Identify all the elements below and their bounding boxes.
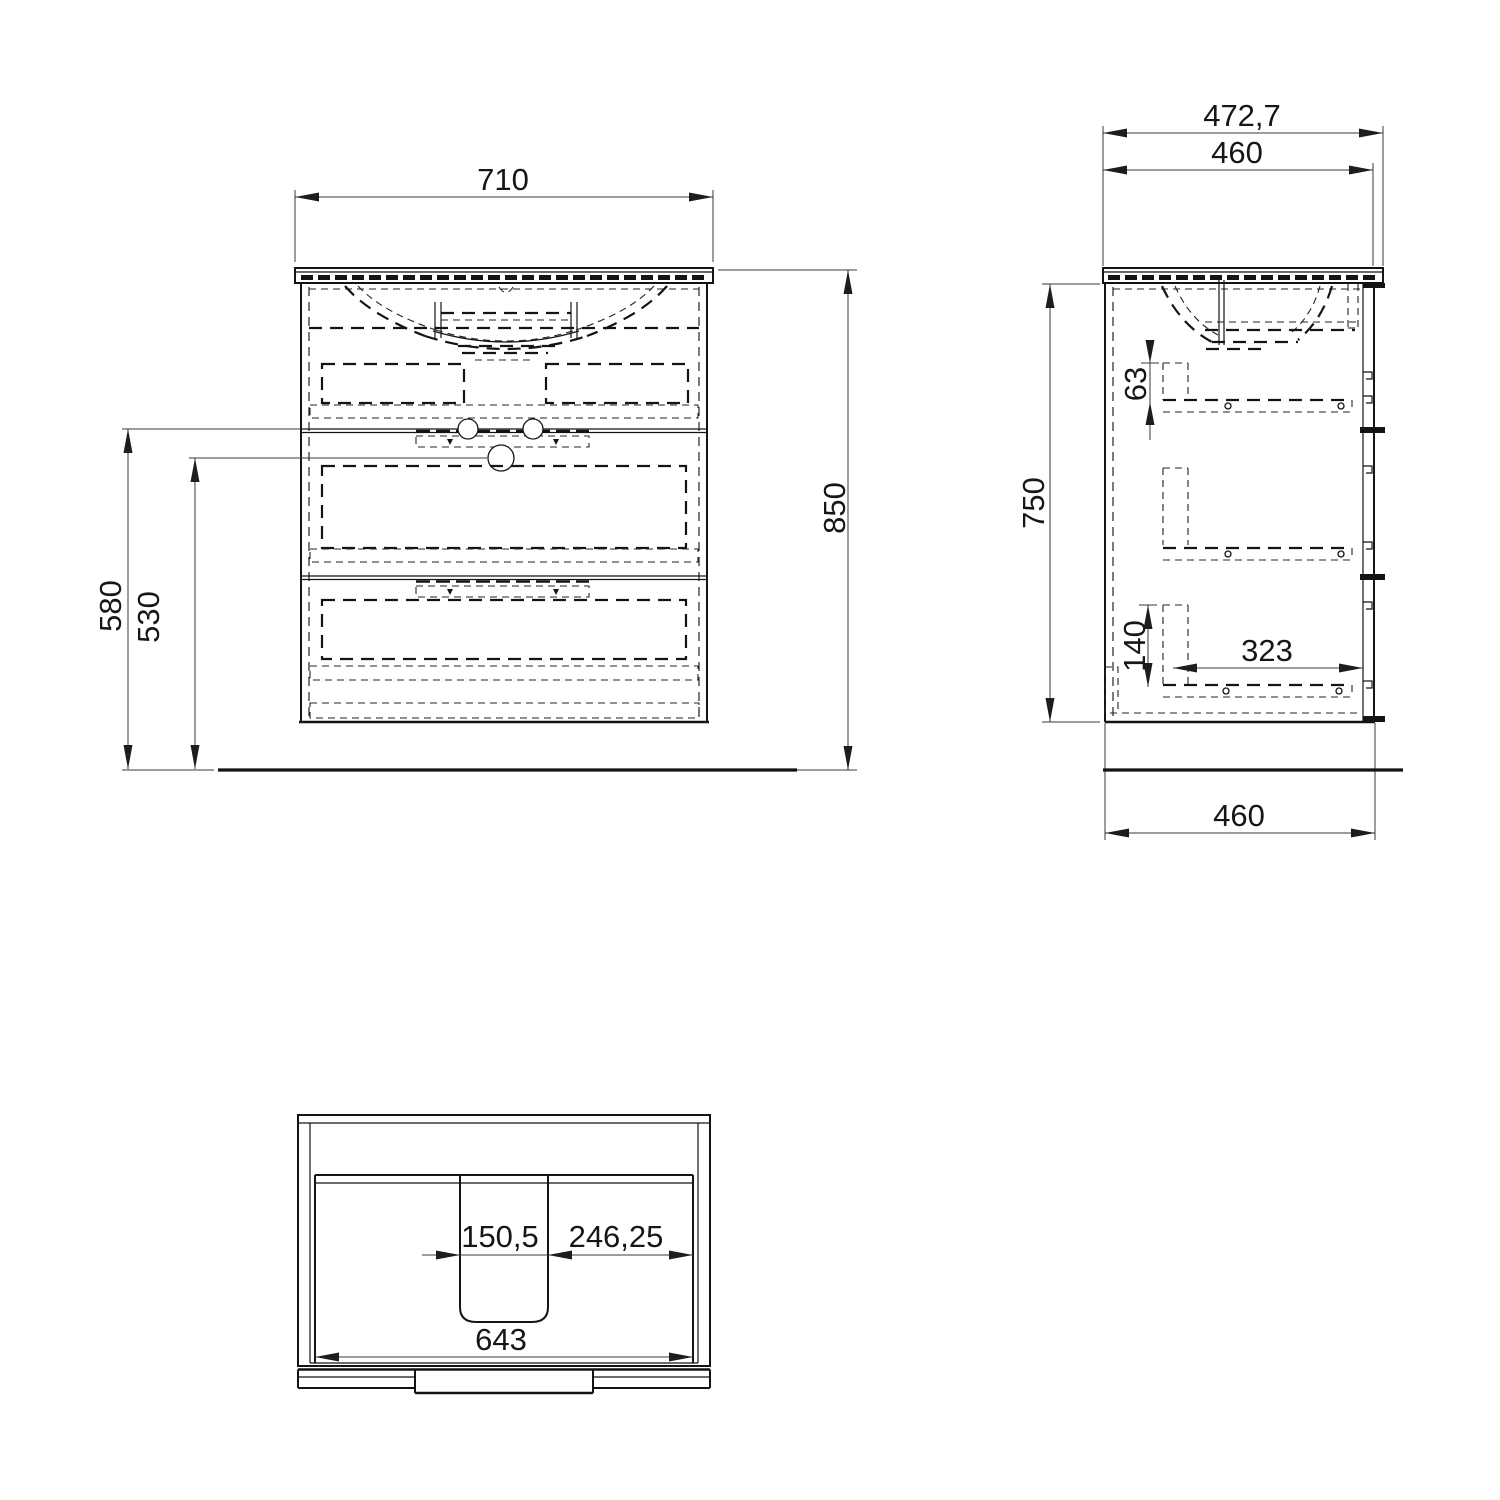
dim-side-depth-drawer-label: 323 — [1241, 633, 1293, 668]
dim-side-clearance-bottom-drawer-label: 140 — [1117, 620, 1152, 672]
technical-drawing-page: 710 850 580 530 — [0, 0, 1500, 1500]
dim-front-height-to-divider-label: 580 — [93, 580, 128, 632]
side-top-drawer-profile — [1163, 363, 1352, 412]
dim-side-clearance-bottom-drawer: 140 — [1117, 605, 1157, 687]
dim-side-clearance-top-drawer: 63 — [1118, 340, 1159, 440]
dim-plan-width-inner-label: 643 — [475, 1322, 527, 1357]
dim-side-height-cabinet: 750 — [1016, 284, 1100, 722]
dim-front-height-overall: 850 — [718, 270, 857, 770]
dim-side-depth-cabinet: 460 — [1103, 135, 1373, 266]
dim-side-depth-with-top-label: 472,7 — [1203, 98, 1281, 133]
front-middle-drawer — [310, 419, 698, 597]
dim-side-clearance-top-drawer-label: 63 — [1118, 367, 1153, 401]
front-top-drawer — [310, 364, 698, 447]
dim-front-height-overall-label: 850 — [817, 482, 852, 534]
dim-side-depth-cabinet-label: 460 — [1211, 135, 1263, 170]
side-view: 472,7 460 750 63 — [1016, 98, 1403, 840]
dim-front-width: 710 — [295, 162, 713, 262]
dim-front-width-label: 710 — [477, 162, 529, 197]
side-countertop — [1103, 268, 1383, 283]
dim-side-depth-drawer: 323 — [1173, 633, 1363, 673]
dim-plan-cutout-width-label: 150,5 — [461, 1219, 539, 1254]
dim-plan-cutout: 150,5 246,25 — [422, 1219, 693, 1260]
dim-side-depth-base: 460 — [1105, 723, 1375, 840]
dim-side-depth-base-label: 460 — [1213, 798, 1265, 833]
side-basin-outline — [1162, 280, 1358, 349]
front-countertop — [295, 268, 713, 283]
front-cabinet-body — [299, 283, 709, 722]
front-basin-outline — [345, 286, 667, 360]
side-middle-drawer-profile — [1163, 468, 1352, 560]
plan-back-rail — [298, 1370, 710, 1394]
front-bottom-drawer — [310, 600, 699, 718]
front-view: 710 850 580 530 — [93, 162, 857, 770]
dim-front-height-to-siphon-label: 530 — [131, 591, 166, 643]
dim-side-height-cabinet-label: 750 — [1016, 477, 1051, 529]
dim-plan-cutout-to-side-label: 246,25 — [569, 1219, 664, 1254]
dim-side-depth-with-top: 472,7 — [1103, 98, 1383, 266]
vanity-cabinet-drawing: 710 850 580 530 — [0, 0, 1500, 1500]
dim-plan-width-inner: 643 — [315, 1322, 693, 1362]
plan-view: 150,5 246,25 643 — [298, 1115, 710, 1393]
